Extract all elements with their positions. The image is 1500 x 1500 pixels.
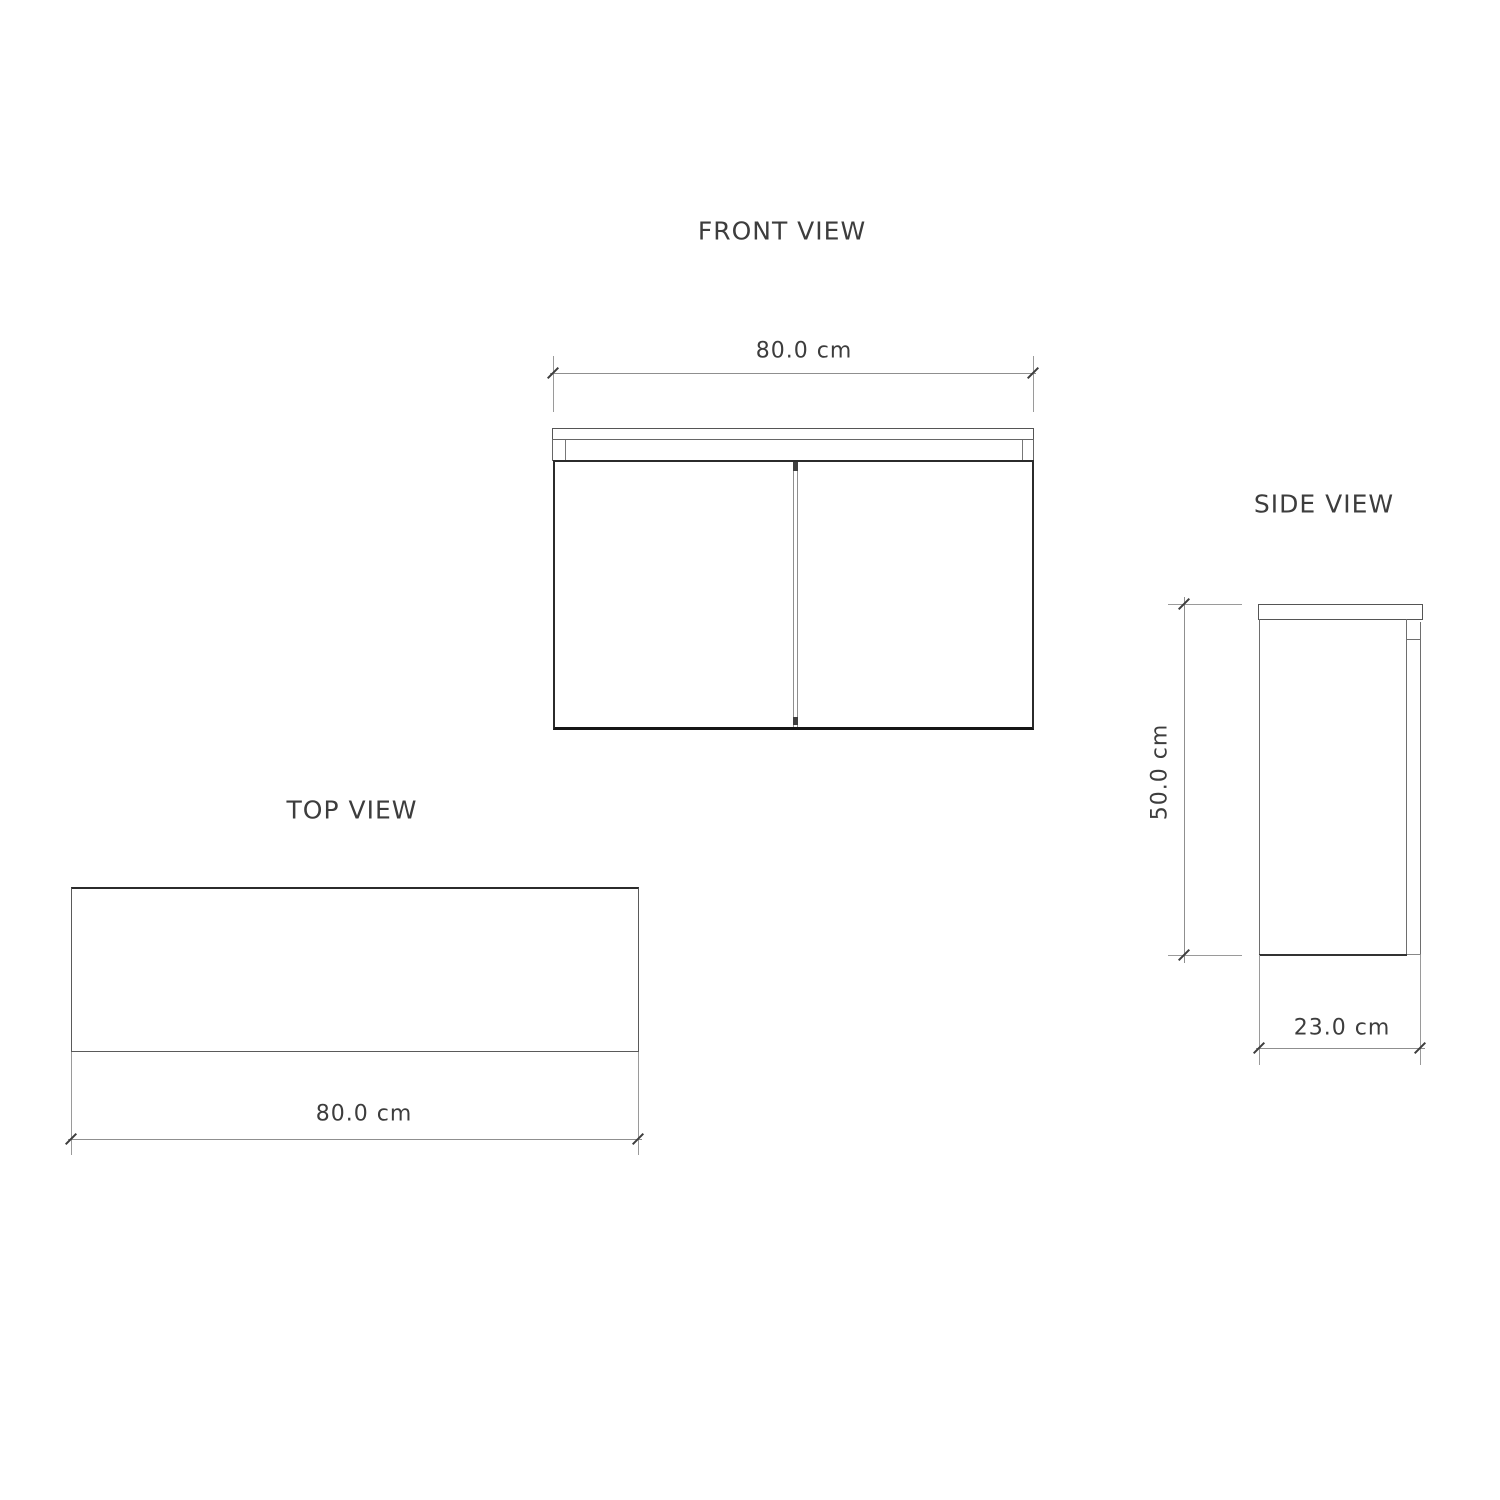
side-depth-dim-line: [1256, 1048, 1425, 1049]
side-door-top-edge: [1406, 639, 1421, 640]
front-width-ext-line-left: [553, 356, 554, 412]
side-height-ext-line-top: [1168, 604, 1242, 605]
front-fascia-seam-left: [565, 440, 566, 460]
top-countertop-outline: [71, 887, 639, 1052]
side-countertop: [1258, 604, 1423, 620]
door-gap-nub-top: [793, 462, 798, 471]
front-fascia-seam-right: [1022, 440, 1023, 460]
front-width-dim-label: 80.0 cm: [756, 339, 853, 364]
front-door-gap-line-left: [793, 462, 794, 727]
door-gap-nub-bottom: [793, 717, 798, 725]
side-height-dim-line: [1184, 597, 1185, 963]
side-height-dim-label: 50.0 cm: [1148, 724, 1173, 821]
front-fascia-panel: [552, 439, 1034, 461]
top-width-dim-label: 80.0 cm: [316, 1102, 413, 1127]
side-carcass-front-edge: [1406, 619, 1407, 955]
front-door-gap-line-right: [797, 462, 798, 727]
side-cabinet-bottom-edge: [1259, 954, 1407, 956]
front-view-title: FRONT VIEW: [698, 217, 866, 246]
side-height-ext-line-bottom: [1168, 955, 1242, 956]
top-view-title: TOP VIEW: [287, 796, 418, 825]
side-view-title: SIDE VIEW: [1254, 490, 1394, 519]
side-carcass-back-edge: [1259, 619, 1260, 955]
side-door-front-edge: [1420, 622, 1421, 955]
side-door-bottom-edge: [1407, 954, 1421, 955]
top-width-dim-line: [68, 1139, 642, 1140]
side-depth-dim-label: 23.0 cm: [1294, 1016, 1391, 1041]
technical-drawing-canvas: FRONT VIEW 80.0 cm SIDE VIEW 50.: [0, 0, 1500, 1500]
front-width-ext-line-right: [1033, 356, 1034, 412]
front-width-dim-line: [550, 373, 1036, 374]
